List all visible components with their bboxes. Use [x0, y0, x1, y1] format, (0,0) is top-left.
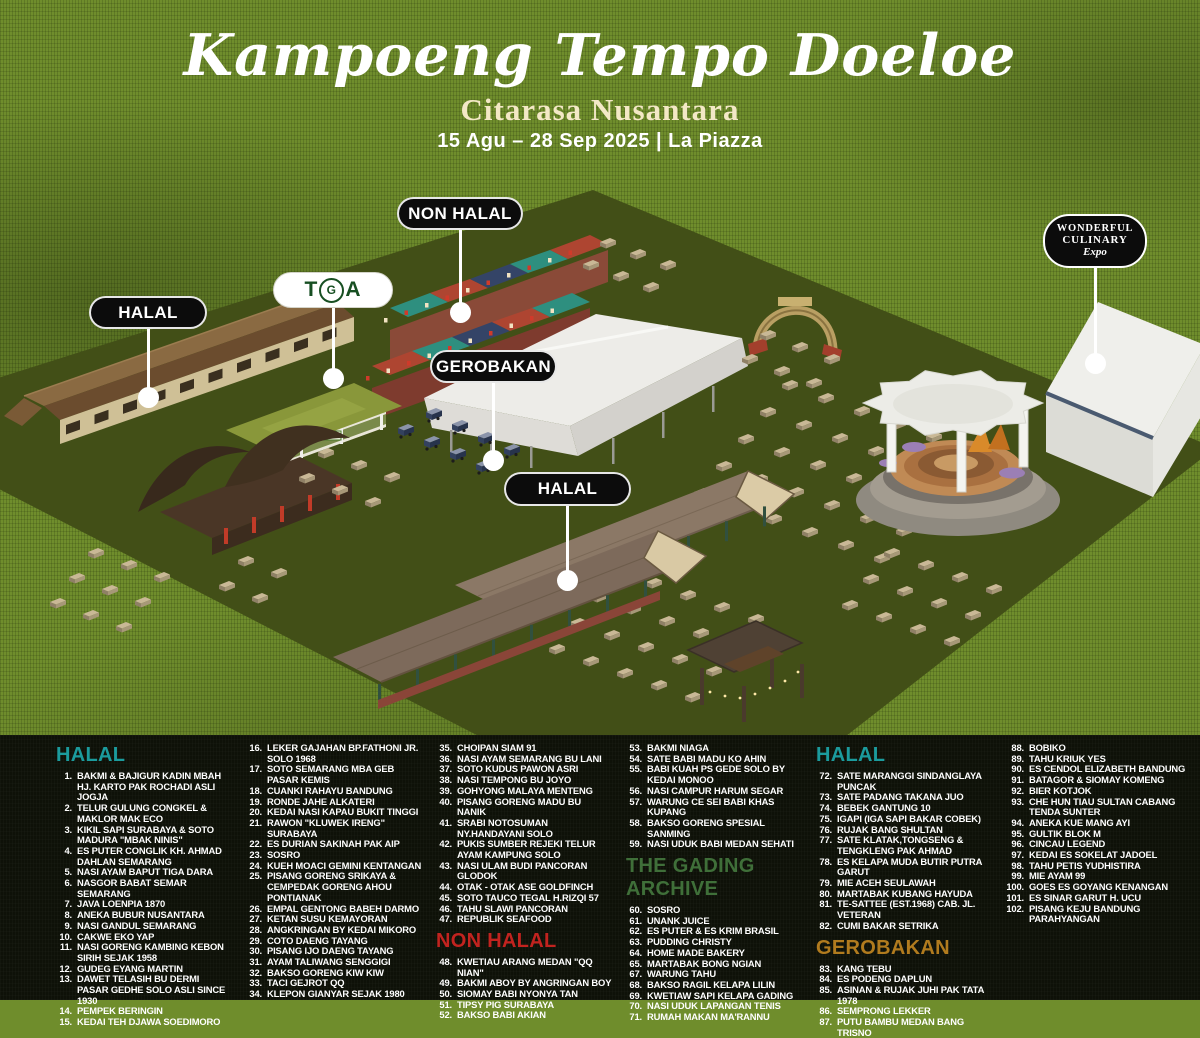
vendor-item: 39.GOHYONG MALAYA MENTENG — [428, 786, 612, 797]
vendor-number: 70. — [618, 1001, 642, 1012]
vendor-name: BAKSO BABI AKIAN — [457, 1010, 546, 1021]
poster-header: Kampoeng Tempo Doeloe Citarasa Nusantara… — [0, 0, 1200, 153]
vendor-item: 22.ES DURIAN SAKINAH PAK AIP — [238, 839, 422, 850]
vendor-name: SOTO SEMARANG MBA GEB PASAR KEMIS — [267, 764, 422, 785]
vendor-number: 58. — [618, 818, 642, 839]
vendor-name: SRABI NOTOSUMAN NY.HANDAYANI SOLO — [457, 818, 612, 839]
vendor-item: 15.KEDAI TEH DJAWA SOEDIMORO — [48, 1017, 230, 1028]
vendor-name: BABI KUAH PS GEDE SOLO BY KEDAI MONOO — [647, 764, 796, 785]
vendor-number: 72. — [808, 771, 832, 792]
vendor-number: 85. — [808, 985, 832, 1006]
vendor-item: 4.ES PUTER CONGLIK KH. AHMAD DAHLAN SEMA… — [48, 846, 230, 867]
legend-section-header: HALAL — [56, 744, 230, 767]
vendor-name: PISANG KEJU BANDUNG PARAHYANGAN — [1029, 904, 1196, 925]
vendor-item: 47.REPUBLIK SEAFOOD — [428, 914, 612, 925]
legend-column: HALAL1.BAKMI & BAJIGUR KADIN MBAH HJ. KA… — [48, 743, 230, 1028]
vendor-item: 41.SRABI NOTOSUMAN NY.HANDAYANI SOLO — [428, 818, 612, 839]
vendor-name: PUKIS SUMBER REJEKI TELUR AYAM KAMPUNG S… — [457, 839, 612, 860]
legend-section-header: HALAL — [816, 744, 994, 767]
vendor-name: TIPSY PIG SURABAYA — [457, 1000, 554, 1011]
vendor-number: 71. — [618, 1012, 642, 1023]
vendor-item: 92.BIER KOTJOK — [1000, 786, 1196, 797]
vendor-item: 64.HOME MADE BAKERY — [618, 948, 796, 959]
vendor-number: 92. — [1000, 786, 1024, 797]
vendor-number: 75. — [808, 814, 832, 825]
vendor-item: 82.CUMI BAKAR SETRIKA — [808, 921, 994, 932]
wce-logo-line: Expo — [1083, 247, 1107, 258]
vendor-number: 2. — [48, 803, 72, 824]
vendor-name: TE-SATTEE (EST.1968) CAB. JL. VETERAN — [837, 899, 994, 920]
vendor-name: KEDAI TEH DJAWA SOEDIMORO — [77, 1017, 220, 1028]
vendor-item: 2.TELUR GULUNG CONGKEL & MAKLOR MAK ECO — [48, 803, 230, 824]
vendor-item: 3.KIKIL SAPI SURABAYA & SOTO MADURA "MBA… — [48, 825, 230, 846]
vendor-name: ES SINAR GARUT H. UCU — [1029, 893, 1141, 904]
wce-logo-line: CULINARY — [1062, 235, 1127, 246]
vendor-number: 34. — [238, 989, 262, 1000]
vendor-number: 52. — [428, 1010, 452, 1021]
legend-column: HALAL72.SATE MARANGGI SINDANGLAYA PUNCAK… — [808, 743, 994, 1038]
vendor-name: PEMPEK BERINGIN — [77, 1006, 163, 1017]
vendor-item: 25.PISANG GORENG SRIKAYA & CEMPEDAK GORE… — [238, 871, 422, 903]
vendor-name: NASI GORENG KAMBING KEBON SIRIH SEJAK 19… — [77, 942, 230, 963]
tga-pointer-line — [332, 304, 335, 380]
vendor-name: DAWET TELASIH BU DERMI PASAR GEDHE SOLO … — [77, 974, 230, 1006]
vendor-number: 4. — [48, 846, 72, 867]
vendor-name: NASI ULAM BUDI PANCORAN GLODOK — [457, 861, 612, 882]
non-halal-pointer-line — [459, 226, 462, 314]
vendor-name: NASGOR BABAT SEMAR SEMARANG — [77, 878, 230, 899]
vendor-number: 17. — [238, 764, 262, 785]
vendor-item: 57.WARUNG CE SEI BABI KHAS KUPANG — [618, 797, 796, 818]
vendor-name: KIKIL SAPI SURABAYA & SOTO MADURA "MBAK … — [77, 825, 230, 846]
map-label-wonderful-culinary-expo: WONDERFULCULINARYExpo — [1043, 214, 1147, 268]
map-label-halal-central: HALAL — [504, 472, 631, 506]
tga-logo-icon: G — [319, 278, 344, 303]
vendor-number: 15. — [48, 1017, 72, 1028]
vendor-number: 39. — [428, 786, 452, 797]
map-label-gerobakan: GEROBAKAN — [430, 350, 557, 383]
vendor-name: NASI GANDUL SEMARANG — [77, 921, 196, 932]
legend-section-header: NON HALAL — [436, 930, 612, 953]
vendor-number: 47. — [428, 914, 452, 925]
legend-column: 16.LEKER GAJAHAN BP.FATHONI JR. SOLO 196… — [238, 743, 422, 1000]
legend-panel: HALAL1.BAKMI & BAJIGUR KADIN MBAH HJ. KA… — [0, 735, 1200, 1000]
vendor-item: 58.BAKSO GORENG SPESIAL SANMING — [618, 818, 796, 839]
vendor-item: 1.BAKMI & BAJIGUR KADIN MBAH HJ. KARTO P… — [48, 771, 230, 803]
vendor-number: 13. — [48, 974, 72, 1006]
vendor-name: SEMPRONG LEKKER — [837, 1006, 931, 1017]
vendor-item: 87.PUTU BAMBU MEDAN BANG TRISNO — [808, 1017, 994, 1038]
vendor-number: 57. — [618, 797, 642, 818]
vendor-item: 70.NASI UDUK LAPANGAN TENIS — [618, 1001, 796, 1012]
vendor-name: KWETIAU ARANG MEDAN "QQ NIAN" — [457, 957, 612, 978]
event-date-location: 15 Agu – 28 Sep 2025 | La Piazza — [0, 130, 1200, 153]
vendor-item: 77.SATE KLATAK,TONGSENG & TENGKLENG PAK … — [808, 835, 994, 856]
vendor-item: 78.ES KELAPA MUDA BUTIR PUTRA GARUT — [808, 857, 994, 878]
vendor-number: 25. — [238, 871, 262, 903]
vendor-item: 6.NASGOR BABAT SEMAR SEMARANG — [48, 878, 230, 899]
vendor-name: WARUNG CE SEI BABI KHAS KUPANG — [647, 797, 796, 818]
vendor-number: 11. — [48, 942, 72, 963]
vendor-item: 48.KWETIAU ARANG MEDAN "QQ NIAN" — [428, 957, 612, 978]
halal-central-pointer-line — [566, 502, 569, 582]
vendor-number: 9. — [48, 921, 72, 932]
vendor-number: 101. — [1000, 893, 1024, 904]
vendor-number: 40. — [428, 797, 452, 818]
map-label-halal-west: HALAL — [89, 296, 207, 329]
vendor-number: 77. — [808, 835, 832, 856]
gerobakan-pointer-line — [492, 379, 495, 462]
vendor-number: 6. — [48, 878, 72, 899]
vendor-number: 81. — [808, 899, 832, 920]
vendor-number: 42. — [428, 839, 452, 860]
vendor-item: 93.CHE HUN TIAU SULTAN CABANG TENDA SUNT… — [1000, 797, 1196, 818]
vendor-item: 42.PUKIS SUMBER REJEKI TELUR AYAM KAMPUN… — [428, 839, 612, 860]
vendor-name: NASI CAMPUR HARUM SEGAR — [647, 786, 783, 797]
vendor-name: CUMI BAKAR SETRIKA — [837, 921, 938, 932]
vendor-name: GOHYONG MALAYA MENTENG — [457, 786, 593, 797]
vendor-number: 21. — [238, 818, 262, 839]
vendor-name: KLEPON GIANYAR SEJAK 1980 — [267, 989, 405, 1000]
vendor-item: 11.NASI GORENG KAMBING KEBON SIRIH SEJAK… — [48, 942, 230, 963]
vendor-item: 13.DAWET TELASIH BU DERMI PASAR GEDHE SO… — [48, 974, 230, 1006]
vendor-name: CHE HUN TIAU SULTAN CABANG TENDA SUNTER — [1029, 797, 1196, 818]
vendor-number: 43. — [428, 861, 452, 882]
vendor-name: SATE KLATAK,TONGSENG & TENGKLENG PAK AHM… — [837, 835, 994, 856]
map-label-non-halal: NON HALAL — [397, 197, 523, 230]
vendor-number: 78. — [808, 857, 832, 878]
vendor-name: SATE MARANGGI SINDANGLAYA PUNCAK — [837, 771, 994, 792]
vendor-number: 59. — [618, 839, 642, 850]
vendor-item: 52.BAKSO BABI AKIAN — [428, 1010, 612, 1021]
legend-column: 88.BOBIKO89.TAHU KRIUK YES90.ES CENDOL E… — [1000, 743, 1196, 925]
legend-section-header: GEROBAKAN — [816, 937, 994, 960]
vendor-item: 34.KLEPON GIANYAR SEJAK 1980 — [238, 989, 422, 1000]
vendor-item: 81.TE-SATTEE (EST.1968) CAB. JL. VETERAN — [808, 899, 994, 920]
vendor-name: PUTU BAMBU MEDAN BANG TRISNO — [837, 1017, 994, 1038]
vendor-item: 16.LEKER GAJAHAN BP.FATHONI JR. SOLO 196… — [238, 743, 422, 764]
vendor-number: 14. — [48, 1006, 72, 1017]
vendor-name: REPUBLIK SEAFOOD — [457, 914, 551, 925]
vendor-name: PISANG GORENG SRIKAYA & CEMPEDAK GORENG … — [267, 871, 422, 903]
vendor-number: 87. — [808, 1017, 832, 1038]
vendor-number: 56. — [618, 786, 642, 797]
event-title: Kampoeng Tempo Doeloe — [0, 26, 1200, 86]
vendor-number: 86. — [808, 1006, 832, 1017]
vendor-item: 17.SOTO SEMARANG MBA GEB PASAR KEMIS — [238, 764, 422, 785]
vendor-name: TELUR GULUNG CONGKEL & MAKLOR MAK ECO — [77, 803, 230, 824]
vendor-item: 75.IGAPI (IGA SAPI BAKAR COBEK) — [808, 814, 994, 825]
vendor-number: 55. — [618, 764, 642, 785]
vendor-item: 45.SOTO TAUCO TEGAL H.RIZQI 57 — [428, 893, 612, 904]
vendor-name: BAKSO GORENG SPESIAL SANMING — [647, 818, 796, 839]
vendor-number: 102. — [1000, 904, 1024, 925]
vendor-number: 82. — [808, 921, 832, 932]
wce-pointer-line — [1094, 264, 1097, 365]
vendor-item: 14.PEMPEK BERINGIN — [48, 1006, 230, 1017]
legend-section-header: THE GADING ARCHIVE — [626, 855, 796, 901]
vendor-number: 3. — [48, 825, 72, 846]
vendor-item: 85.ASINAN & RUJAK JUHI PAK TATA 1978 — [808, 985, 994, 1006]
vendor-name: HOME MADE BAKERY — [647, 948, 745, 959]
event-subtitle: Citarasa Nusantara — [0, 92, 1200, 128]
vendor-number: 48. — [428, 957, 452, 978]
vendor-name: ASINAN & RUJAK JUHI PAK TATA 1978 — [837, 985, 994, 1006]
vendor-number: 51. — [428, 1000, 452, 1011]
vendor-number: 64. — [618, 948, 642, 959]
vendor-number: 93. — [1000, 797, 1024, 818]
legend-column: 53.BAKMI NIAGA54.SATE BABI MADU KO AHIN5… — [618, 743, 796, 1023]
vendor-number: 18. — [238, 786, 262, 797]
vendor-item: 59.NASI UDUK BABI MEDAN SEHATI — [618, 839, 796, 850]
vendor-item: 43.NASI ULAM BUDI PANCORAN GLODOK — [428, 861, 612, 882]
vendor-number: 41. — [428, 818, 452, 839]
vendor-name: CUANKI RAHAYU BANDUNG — [267, 786, 393, 797]
vendor-name: ES KELAPA MUDA BUTIR PUTRA GARUT — [837, 857, 994, 878]
vendor-name: BIER KOTJOK — [1029, 786, 1091, 797]
vendor-item: 86.SEMPRONG LEKKER — [808, 1006, 994, 1017]
map-label-tga: TGA — [273, 272, 393, 308]
vendor-name: PISANG GORENG MADU BU NANIK — [457, 797, 612, 818]
vendor-item: 21.RAWON "KLUWEK IRENG" SURABAYA — [238, 818, 422, 839]
vendor-name: LEKER GAJAHAN BP.FATHONI JR. SOLO 1968 — [267, 743, 422, 764]
vendor-number: 45. — [428, 893, 452, 904]
vendor-item: 101.ES SINAR GARUT H. UCU — [1000, 893, 1196, 904]
vendor-item: 9.NASI GANDUL SEMARANG — [48, 921, 230, 932]
vendor-item: 40.PISANG GORENG MADU BU NANIK — [428, 797, 612, 818]
legend-column: 35.CHOIPAN SIAM 9136.NASI AYAM SEMARANG … — [428, 743, 612, 1021]
vendor-item: 102.PISANG KEJU BANDUNG PARAHYANGAN — [1000, 904, 1196, 925]
vendor-item: 71.RUMAH MAKAN MA'RANNU — [618, 1012, 796, 1023]
vendor-name: BAKMI & BAJIGUR KADIN MBAH HJ. KARTO PAK… — [77, 771, 230, 803]
vendor-name: RUMAH MAKAN MA'RANNU — [647, 1012, 770, 1023]
vendor-number: 1. — [48, 771, 72, 803]
wce-logo-line: WONDERFUL — [1057, 224, 1134, 235]
vendor-item: 72.SATE MARANGGI SINDANGLAYA PUNCAK — [808, 771, 994, 792]
halal-west-pointer-line — [147, 325, 150, 399]
vendor-item: 51.TIPSY PIG SURABAYA — [428, 1000, 612, 1011]
vendor-item: 55.BABI KUAH PS GEDE SOLO BY KEDAI MONOO — [618, 764, 796, 785]
vendor-name: SOTO TAUCO TEGAL H.RIZQI 57 — [457, 893, 599, 904]
vendor-name: NASI UDUK LAPANGAN TENIS — [647, 1001, 781, 1012]
vendor-item: 18.CUANKI RAHAYU BANDUNG — [238, 786, 422, 797]
vendor-item: 56.NASI CAMPUR HARUM SEGAR — [618, 786, 796, 797]
vendor-name: ES PUTER CONGLIK KH. AHMAD DAHLAN SEMARA… — [77, 846, 230, 867]
vendor-name: NASI UDUK BABI MEDAN SEHATI — [647, 839, 794, 850]
vendor-number: 16. — [238, 743, 262, 764]
vendor-name: IGAPI (IGA SAPI BAKAR COBEK) — [837, 814, 981, 825]
vendor-name: RAWON "KLUWEK IRENG" SURABAYA — [267, 818, 422, 839]
